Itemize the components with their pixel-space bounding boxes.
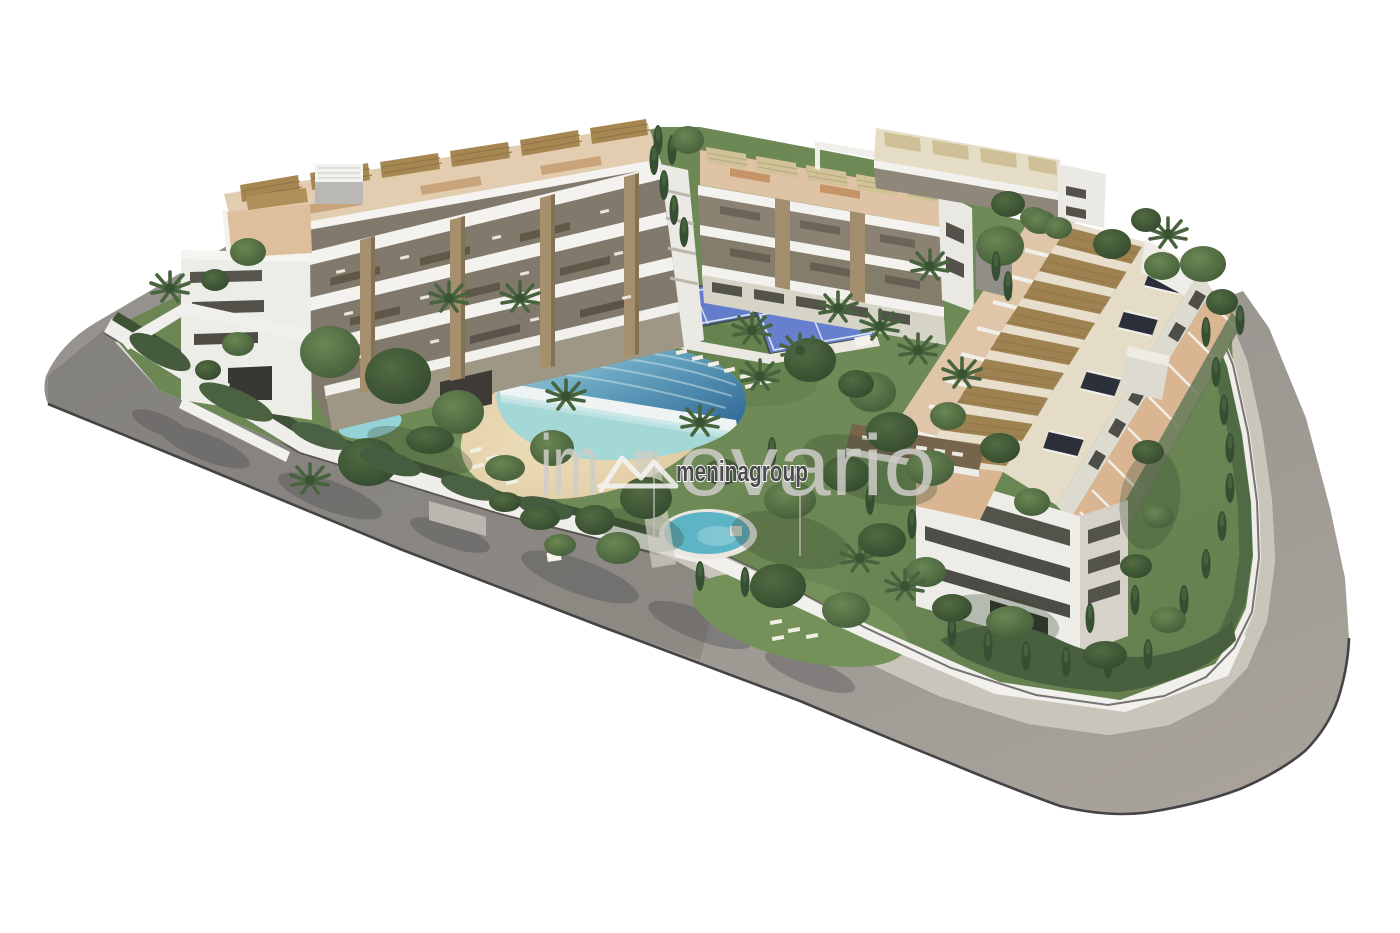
svg-text:meninagroup: meninagroup xyxy=(676,456,808,488)
svg-text:im: im xyxy=(540,418,599,514)
